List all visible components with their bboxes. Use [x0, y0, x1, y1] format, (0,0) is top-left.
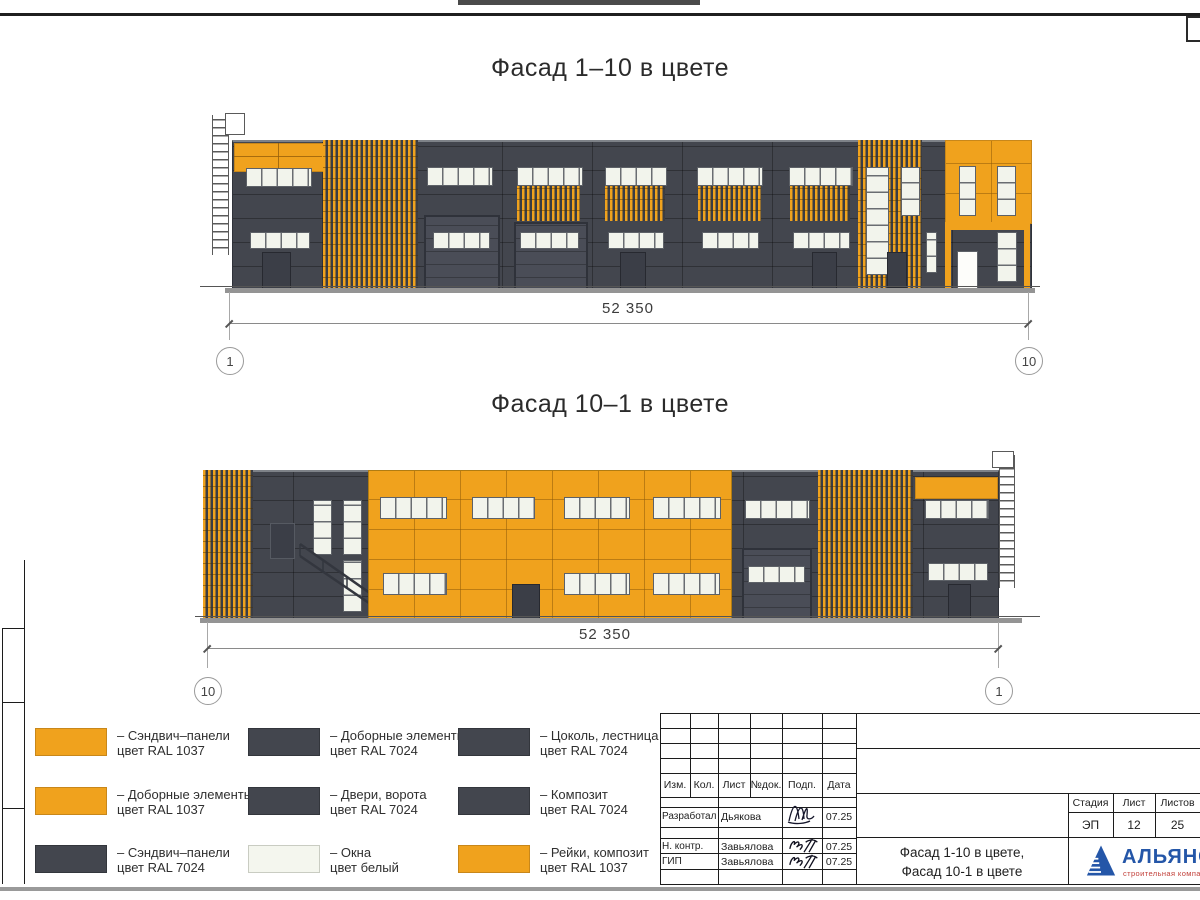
- table-line: [660, 807, 856, 808]
- table-line: [660, 758, 856, 759]
- sheets-label: Листов: [1155, 797, 1200, 809]
- frame-line: [2, 628, 3, 884]
- axis-marker: 1: [985, 677, 1013, 705]
- slat-band: [698, 186, 761, 221]
- dimension-value: 52 350: [328, 300, 928, 317]
- window-strip: [250, 232, 310, 249]
- axis-label: 1: [995, 684, 1002, 699]
- tall-window: [901, 167, 920, 216]
- ladder-cage-box: [225, 113, 245, 135]
- axis-label: 1: [226, 354, 233, 369]
- window-strip: [564, 497, 630, 519]
- table-line: [856, 748, 1200, 749]
- signature-icon: [786, 799, 820, 826]
- garage-door: [424, 215, 500, 292]
- col-header: Лист: [718, 779, 750, 791]
- frame-top-line: [0, 13, 1200, 16]
- axis-marker: 10: [1015, 347, 1043, 375]
- slat-band: [517, 186, 580, 221]
- dimension-value: 52 350: [305, 626, 905, 643]
- entry-door: [948, 584, 971, 620]
- axis-label: 10: [201, 684, 215, 699]
- window-strip: [745, 500, 810, 519]
- orange-accent-panel: [915, 477, 998, 499]
- extension-line: [229, 292, 230, 340]
- ground-line: [195, 616, 1040, 617]
- sheets-value: 25: [1155, 818, 1200, 832]
- panel-joint: [278, 143, 279, 170]
- legend-swatch: [35, 728, 107, 756]
- entry-door: [620, 252, 646, 290]
- frame-line: [2, 702, 24, 703]
- window-strip: [793, 232, 850, 249]
- window-strip: [383, 573, 447, 595]
- sheet-label: Лист: [1113, 797, 1155, 809]
- legend-swatch: [248, 787, 320, 815]
- window-strip: [517, 167, 583, 186]
- pyramid-logo-icon: [1086, 844, 1116, 877]
- col-header: Кол.: [690, 779, 718, 791]
- frame-line: [24, 560, 25, 884]
- table-line: [856, 713, 857, 884]
- table-line: [660, 827, 856, 828]
- table-line: [660, 713, 661, 884]
- frame-bottom-bar: [0, 887, 1200, 891]
- tall-window: [997, 232, 1017, 282]
- window-strip: [925, 500, 989, 519]
- col-header: Подп.: [782, 779, 822, 791]
- slat-band: [790, 186, 850, 221]
- legend-swatch: [248, 845, 320, 873]
- stage-value: ЭП: [1068, 818, 1113, 832]
- entry-door: [812, 252, 837, 290]
- entry-door: [887, 252, 907, 288]
- table-line: [660, 838, 856, 839]
- entry-door: [262, 252, 291, 290]
- row-name: Дьякова: [721, 811, 761, 823]
- table-line: [660, 853, 856, 854]
- table-line: [856, 793, 1200, 794]
- window-strip: [472, 497, 535, 519]
- table-line: [1068, 812, 1200, 813]
- extension-line: [1028, 292, 1029, 340]
- row-date: 07.25: [822, 841, 856, 853]
- company-name: АЛЬЯНС: [1122, 846, 1200, 869]
- table-line: [660, 773, 856, 774]
- garage-door: [742, 548, 812, 622]
- ground-bar: [200, 618, 1022, 623]
- table-line: [856, 713, 1200, 714]
- col-header: Дата: [822, 779, 856, 791]
- legend-label: – Цоколь, лестницацвет RAL 7024: [540, 728, 658, 758]
- orange-trim-strip: [1024, 230, 1030, 288]
- frame-line: [2, 628, 24, 629]
- table-line: [660, 869, 856, 870]
- ground-bar: [225, 288, 1035, 293]
- facade-10-1-title: Фасад 10–1 в цвете: [300, 390, 920, 419]
- dimension-line: [207, 648, 998, 649]
- table-line: [660, 713, 856, 714]
- table-line: [660, 797, 856, 798]
- window-strip: [427, 167, 493, 186]
- frame-corner-box: [1186, 16, 1200, 42]
- dimension-line: [229, 323, 1028, 324]
- window-strip: [748, 566, 805, 583]
- legend-label: – Композитцвет RAL 7024: [540, 787, 628, 817]
- axis-label: 10: [1022, 354, 1036, 369]
- drawing-sheet: Фасад 1–10 в цвете: [0, 0, 1200, 900]
- stage-label: Стадия: [1068, 797, 1113, 809]
- signature-icon: [786, 854, 822, 869]
- legend-label: – Доборные элементыцвет RAL 7024: [330, 728, 466, 758]
- legend-swatch: [35, 787, 107, 815]
- entry-door: [512, 584, 540, 620]
- axis-marker: 10: [194, 677, 222, 705]
- tall-window: [926, 232, 937, 273]
- window-strip: [608, 232, 664, 249]
- legend-label: – Сэндвич–панелицвет RAL 1037: [117, 728, 230, 758]
- tall-window: [997, 166, 1016, 216]
- row-role: Н. контр.: [662, 841, 703, 852]
- table-line: [718, 713, 719, 884]
- facade-1-10-title: Фасад 1–10 в цвете: [300, 54, 920, 83]
- tall-window: [959, 166, 976, 216]
- exterior-ladder: [999, 455, 1015, 588]
- legend-swatch: [248, 728, 320, 756]
- table-line: [660, 743, 856, 744]
- entry-door-white: [957, 251, 978, 290]
- row-date: 07.25: [822, 811, 856, 823]
- company-tagline: строительная компания: [1123, 869, 1200, 878]
- slat-band: [605, 186, 665, 221]
- orange-trim-strip: [945, 230, 951, 288]
- orange-slat-tower: [323, 140, 418, 288]
- window-strip: [246, 168, 312, 187]
- window-strip: [702, 232, 759, 249]
- legend-label: – Сэндвич–панелицвет RAL 7024: [117, 845, 230, 875]
- window-strip: [653, 573, 720, 595]
- row-date: 07.25: [822, 856, 856, 868]
- signature-icon: [786, 838, 822, 853]
- row-name: Завьялова: [721, 856, 773, 868]
- legend-label: – Доборные элементыцвет RAL 1037: [117, 787, 253, 817]
- window-strip: [653, 497, 721, 519]
- col-header: №док.: [750, 779, 782, 791]
- window-strip: [697, 167, 763, 186]
- legend-swatch: [458, 787, 530, 815]
- window-strip: [789, 167, 853, 186]
- table-line: [782, 713, 783, 884]
- window-strip: [520, 232, 579, 249]
- legend-swatch: [458, 845, 530, 873]
- ladder-cage-box: [992, 451, 1014, 468]
- orange-trim-band: [945, 222, 1030, 230]
- sheet-value: 12: [1113, 818, 1155, 832]
- legend-label: – Двери, воротацвет RAL 7024: [330, 787, 427, 817]
- window-strip: [605, 167, 667, 186]
- window-strip: [564, 573, 630, 595]
- window-strip: [380, 497, 447, 519]
- axis-marker: 1: [216, 347, 244, 375]
- col-header: Изм.: [660, 779, 690, 791]
- slat-strip: [818, 470, 913, 618]
- orange-sandwich-field: [368, 470, 732, 620]
- legend-swatch: [458, 728, 530, 756]
- slat-strip: [203, 470, 253, 618]
- tall-window: [866, 167, 889, 275]
- exterior-ladder: [212, 115, 229, 255]
- scan-artifact-top-bar: [458, 0, 700, 5]
- row-name: Завьялова: [721, 841, 773, 853]
- ground-line: [200, 286, 1040, 287]
- legend-swatch: [35, 845, 107, 873]
- row-role: Разработал: [662, 811, 716, 822]
- window-strip: [928, 563, 988, 581]
- doc-title: Фасад 1-10 в цвете, Фасад 10-1 в цвете: [858, 843, 1066, 881]
- legend-label: – Рейки, композитцвет RAL 1037: [540, 845, 649, 875]
- window-strip: [433, 232, 490, 249]
- table-line: [856, 837, 1200, 838]
- table-line: [660, 728, 856, 729]
- legend-label: – Окнацвет белый: [330, 845, 399, 875]
- row-role: ГИП: [662, 856, 682, 867]
- frame-line: [2, 808, 24, 809]
- table-line: [660, 884, 1200, 885]
